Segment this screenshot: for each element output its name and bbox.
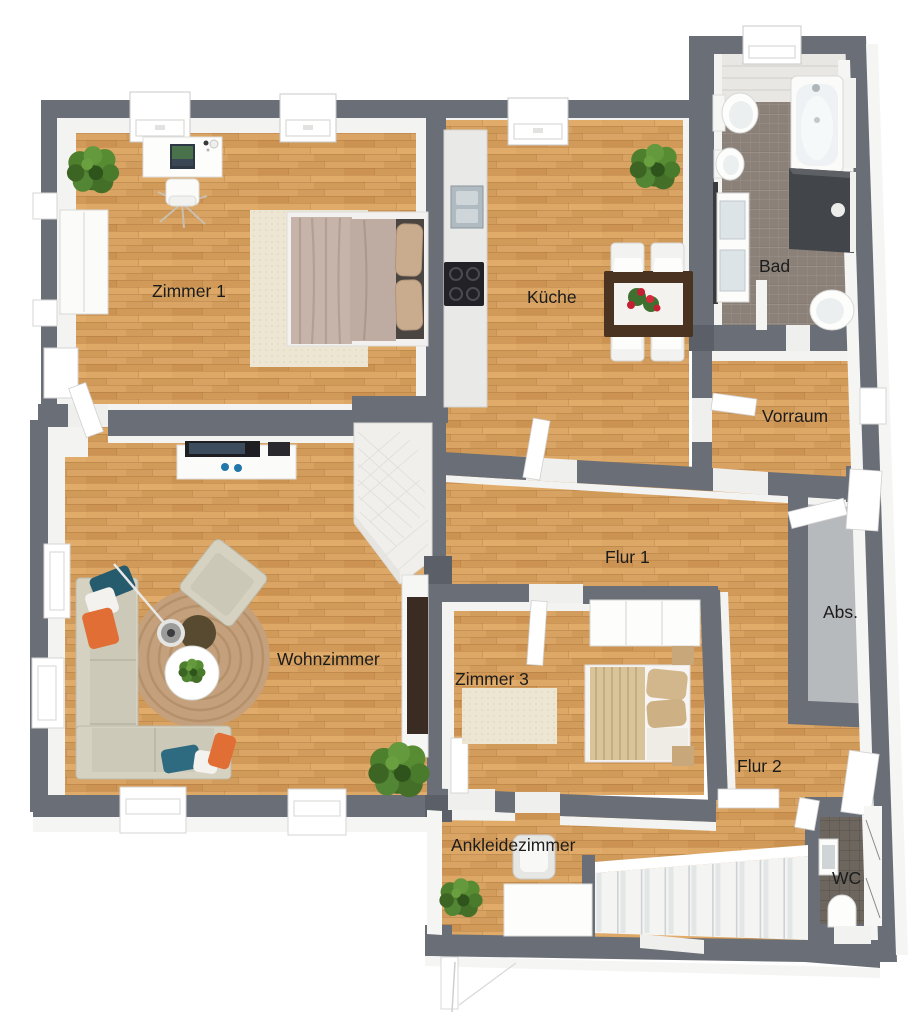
- svg-text:Flur 1: Flur 1: [605, 547, 650, 567]
- svg-text:Flur 2: Flur 2: [737, 756, 782, 776]
- svg-text:Abs.: Abs.: [823, 602, 858, 622]
- svg-text:Bad: Bad: [759, 256, 790, 276]
- svg-text:Vorraum: Vorraum: [762, 406, 828, 426]
- svg-text:Zimmer 3: Zimmer 3: [455, 669, 529, 689]
- svg-text:Zimmer 1: Zimmer 1: [152, 281, 226, 301]
- svg-text:Küche: Küche: [527, 287, 577, 307]
- svg-text:WC: WC: [832, 868, 861, 888]
- svg-text:Wohnzimmer: Wohnzimmer: [277, 649, 380, 669]
- svg-text:Ankleidezimmer: Ankleidezimmer: [451, 835, 576, 855]
